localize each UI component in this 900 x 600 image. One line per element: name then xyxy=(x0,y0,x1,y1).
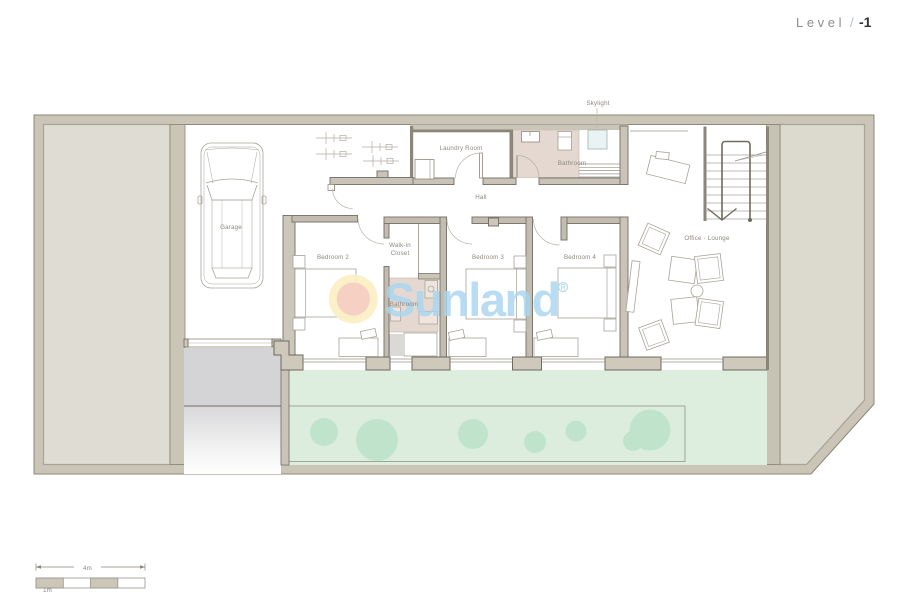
svg-text:Sunland: Sunland xyxy=(384,273,559,326)
svg-text:Closet: Closet xyxy=(391,250,410,257)
svg-text:Bedroom 3: Bedroom 3 xyxy=(472,254,504,261)
svg-text:Walk-in: Walk-in xyxy=(389,242,411,249)
svg-text:Hall: Hall xyxy=(475,194,486,201)
svg-text:-1: -1 xyxy=(859,14,872,30)
svg-text:Skylight: Skylight xyxy=(586,100,609,107)
svg-text:Bedroom 2: Bedroom 2 xyxy=(317,254,349,261)
svg-text:Garage: Garage xyxy=(220,224,242,231)
svg-text:Level: Level xyxy=(796,15,845,30)
svg-text:Bathroom: Bathroom xyxy=(390,301,418,308)
svg-text:/: / xyxy=(850,15,854,30)
svg-text:Bedroom 4: Bedroom 4 xyxy=(564,254,596,261)
svg-text:4m: 4m xyxy=(83,565,92,572)
svg-text:Bathroom: Bathroom xyxy=(558,160,586,167)
svg-text:Laundry Room: Laundry Room xyxy=(440,145,483,152)
svg-text:Office - Lounge: Office - Lounge xyxy=(684,235,730,242)
svg-text:1m: 1m xyxy=(43,587,52,594)
